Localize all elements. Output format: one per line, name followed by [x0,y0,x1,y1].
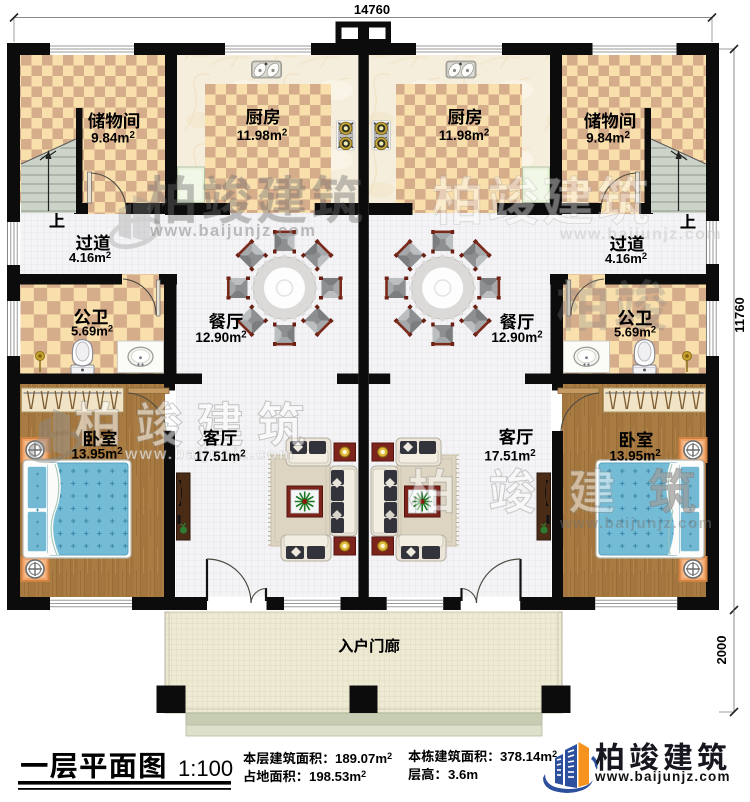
svg-text:12.90m2: 12.90m2 [195,330,246,345]
svg-text:17.51m2: 17.51m2 [484,448,535,463]
svg-text:9.84m2: 9.84m2 [586,130,630,145]
svg-text:www.baijunjz.com: www.baijunjz.com [559,515,713,532]
svg-text:378.14m2: 378.14m2 [500,749,557,764]
svg-text:14760: 14760 [354,2,390,17]
svg-text:4.16m2: 4.16m2 [605,250,647,266]
svg-text:12.90m2: 12.90m2 [491,330,542,345]
svg-text:www.baijunjz.com: www.baijunjz.com [149,222,316,240]
svg-text:11.98m2: 11.98m2 [439,128,489,143]
svg-text:3.6m: 3.6m [448,767,478,782]
svg-text:2000: 2000 [714,636,729,665]
svg-text:11760: 11760 [732,297,747,332]
svg-text:4.16m2: 4.16m2 [69,249,111,265]
svg-text:13.95m2: 13.95m2 [71,446,122,461]
svg-text:189.07m2: 189.07m2 [335,751,392,766]
svg-text:5.69m2: 5.69m2 [71,322,113,338]
svg-text:9.84m2: 9.84m2 [91,130,135,145]
svg-text:198.53m2: 198.53m2 [309,769,366,784]
svg-text:17.51m2: 17.51m2 [194,449,245,464]
svg-text:11.98m2: 11.98m2 [237,128,287,143]
svg-text:13.95m2: 13.95m2 [609,448,660,463]
svg-text:www.baijunjz.com: www.baijunjz.com [594,769,731,784]
svg-text:1:100: 1:100 [178,756,233,781]
svg-text:5.69m2: 5.69m2 [614,323,656,339]
